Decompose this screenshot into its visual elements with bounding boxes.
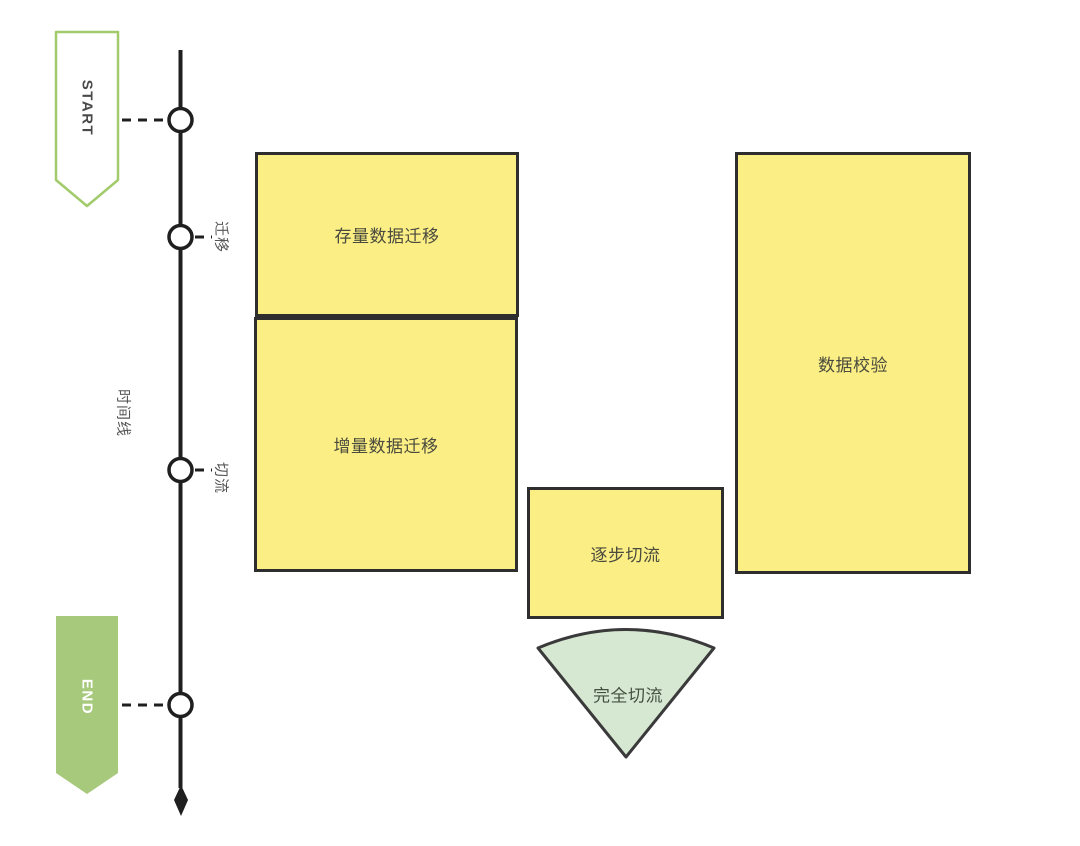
activity-box-gradual-switch: 逐步切流 [527, 487, 724, 619]
timeline-node-migration [169, 226, 192, 249]
start-banner-label: START [79, 80, 96, 136]
timeline-axis-label: 时间线 [114, 389, 135, 437]
activity-box-data-validation: 数据校验 [735, 152, 971, 574]
activity-label: 存量数据迁移 [335, 222, 440, 247]
activity-box-incremental-migration: 增量数据迁移 [254, 317, 518, 572]
timeline-node-start [169, 109, 192, 132]
timeline-node-end [169, 694, 192, 717]
timeline-node-switch [169, 459, 192, 482]
activity-label: 增量数据迁移 [334, 432, 439, 457]
activity-label: 逐步切流 [591, 541, 661, 566]
funnel-label: 完全切流 [593, 682, 663, 707]
timeline-arrowhead-icon [174, 785, 188, 816]
diagram-canvas: START END 时间线 迁移 切流 存量数据迁移 增量数据迁移 逐步切流 数… [0, 0, 1080, 846]
milestone-label-switch: 切流 [212, 462, 233, 494]
activity-box-stock-migration: 存量数据迁移 [255, 152, 519, 317]
milestone-label-migration: 迁移 [212, 221, 233, 253]
end-banner-label: END [79, 679, 96, 715]
activity-label: 数据校验 [818, 351, 888, 376]
